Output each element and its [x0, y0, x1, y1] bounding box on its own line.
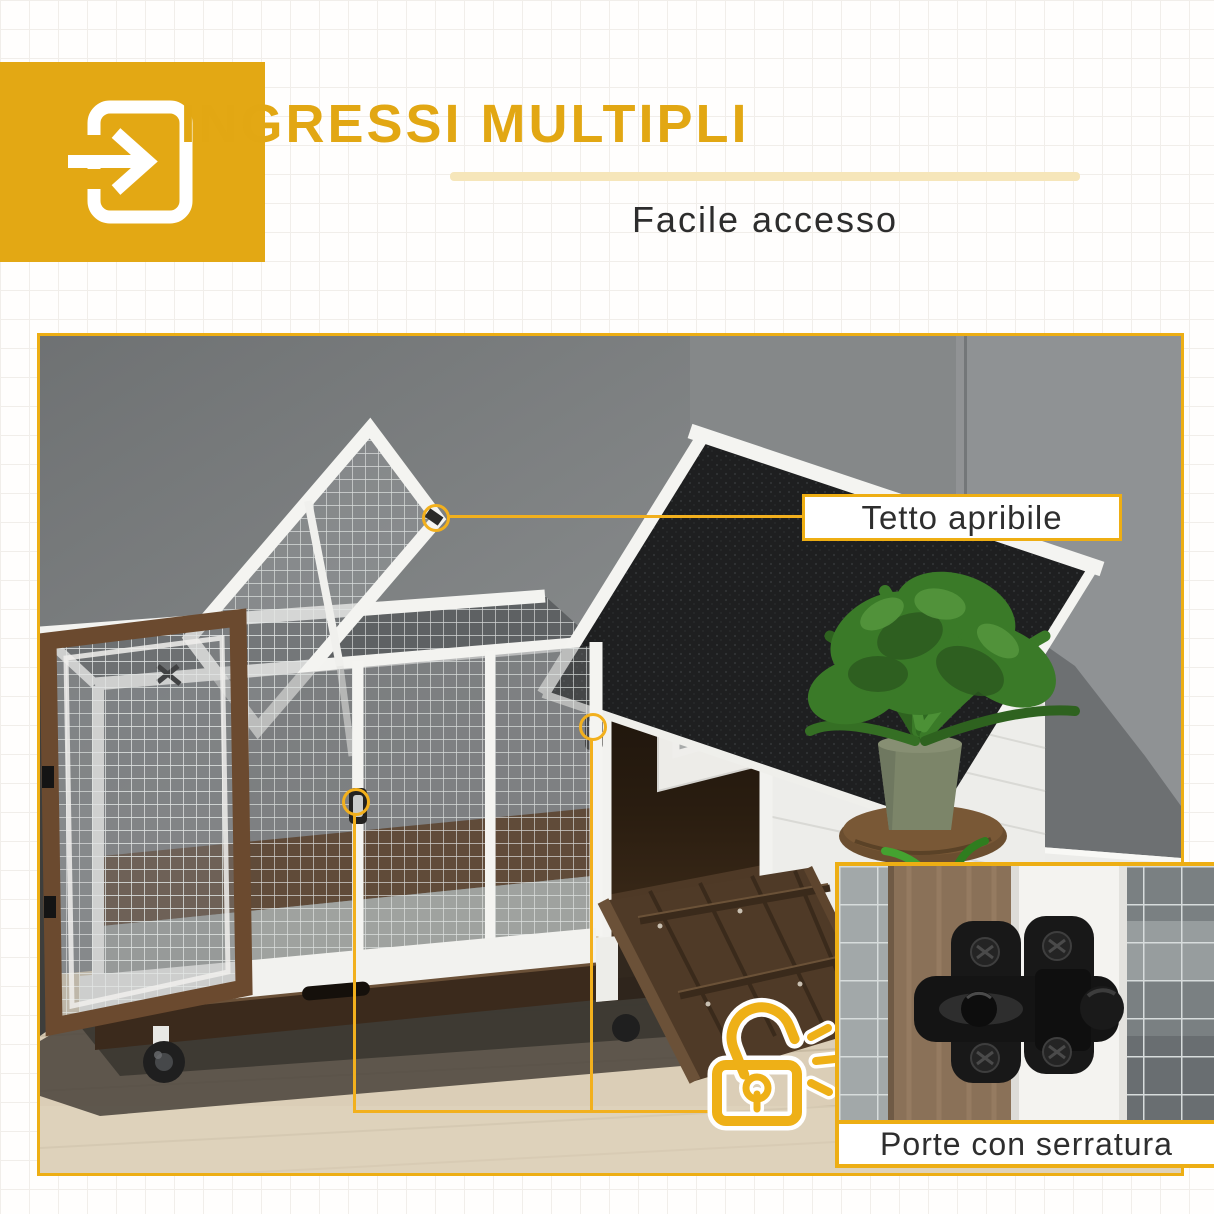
title-underline: [450, 172, 1080, 181]
callout-ring-run-door-latch: [342, 788, 370, 816]
latch-inset: Porte con serratura: [835, 862, 1214, 1168]
latch-inset-illustration: [839, 866, 1214, 1120]
callout-ring-house-door-latch: [579, 713, 607, 741]
callout-ring-roof-hinge: [422, 504, 450, 532]
page-title: INGRESSI MULTIPLI: [0, 93, 930, 155]
latch-inset-photo: [839, 866, 1214, 1120]
callout-line-house-door: [590, 738, 593, 1113]
callout-line-bottom: [353, 1110, 717, 1113]
latch-inset-caption-text: Porte con serratura: [880, 1126, 1173, 1163]
roof-callout-text: Tetto apribile: [861, 499, 1062, 537]
callout-line-run-door: [353, 813, 356, 1113]
product-infographic-page: INGRESSI MULTIPLI Facile accesso: [0, 0, 1214, 1214]
page-subtitle: Facile accesso: [300, 199, 1214, 241]
roof-callout-label: Tetto apribile: [802, 494, 1122, 541]
callout-line-roof: [448, 515, 802, 518]
unlocked-padlock-icon: [696, 993, 838, 1135]
entry-icon-tile: [0, 62, 265, 262]
latch-inset-caption: Porte con serratura: [839, 1120, 1214, 1164]
